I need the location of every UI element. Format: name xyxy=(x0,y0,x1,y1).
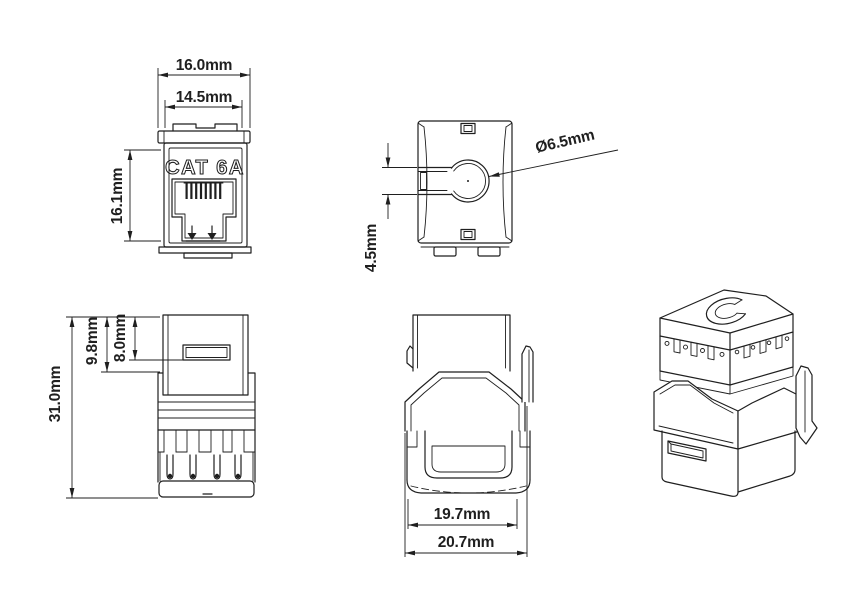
idc-pins xyxy=(167,455,241,479)
rear-left-hook xyxy=(407,346,413,368)
cable-entry-hole xyxy=(418,160,489,202)
dim-side-upper-depth: 9.8mm xyxy=(84,317,101,365)
top-body xyxy=(418,121,512,243)
iso-idc-towers-right xyxy=(730,332,793,385)
product-label: CAT 6A xyxy=(165,157,245,179)
iso-latch-wedge xyxy=(654,381,738,449)
dim-top-hole-offset: 4.5mm xyxy=(363,224,380,272)
technical-drawing-canvas: CAT 6A 16.0mm 14.5mm 16.1mm xyxy=(0,0,864,612)
rj45-opening xyxy=(172,179,236,241)
top-view xyxy=(418,121,512,256)
rj45-pins xyxy=(184,183,223,199)
drawing-sheet: CAT 6A 16.0mm 14.5mm 16.1mm xyxy=(0,0,864,612)
dim-front-height: 16.1mm xyxy=(109,168,126,225)
dim-front-outer-width: 16.0mm xyxy=(176,57,233,74)
dim-front-inner-width: 14.5mm xyxy=(176,89,233,106)
rear-right-latch xyxy=(522,346,533,402)
side-top-block xyxy=(163,315,248,395)
front-view-dimensions: 16.0mm 14.5mm 16.1mm xyxy=(109,57,250,241)
rear-view xyxy=(405,315,533,493)
front-view: CAT 6A xyxy=(158,124,251,258)
top-view-dimensions: 4.5mm Ø6.5mm xyxy=(363,127,618,272)
rear-top-block xyxy=(413,315,510,371)
rear-latch-wedge xyxy=(405,372,525,431)
iso-latch-arm xyxy=(796,366,817,444)
dim-top-hole-diameter: Ø6.5mm xyxy=(534,127,596,157)
side-view xyxy=(158,315,255,497)
dim-rear-body-width: 19.7mm xyxy=(434,506,491,523)
dim-side-slot-depth: 8.0mm xyxy=(112,314,129,362)
dim-side-total-height: 31.0mm xyxy=(47,366,64,423)
iso-front-slot xyxy=(668,441,706,461)
iso-cable-ring xyxy=(704,295,747,328)
latch-contacts xyxy=(186,226,220,241)
front-top-tab xyxy=(173,124,237,131)
isometric-view xyxy=(654,290,817,496)
dim-rear-overall-width: 20.7mm xyxy=(438,534,495,551)
